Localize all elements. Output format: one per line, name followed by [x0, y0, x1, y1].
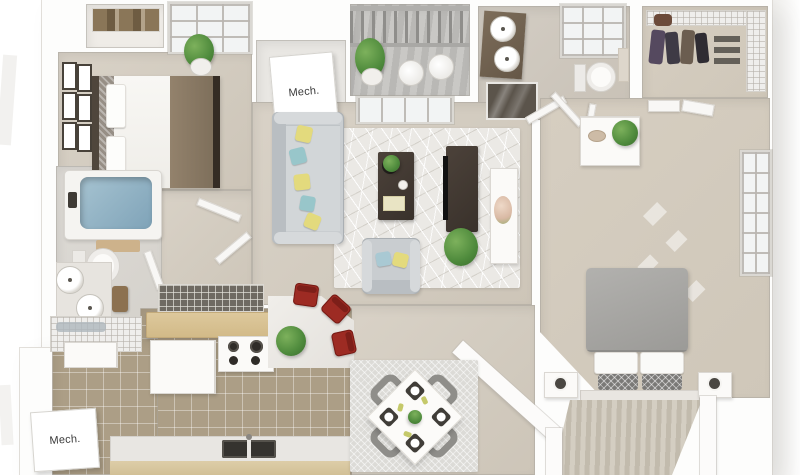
bathtub-water: [80, 177, 152, 229]
stair-side-wall: [700, 396, 716, 475]
kitchen-counter-front: [110, 461, 350, 475]
kitchen-faucet: [246, 434, 252, 440]
mech-bottom-label: Mech.: [49, 433, 81, 447]
sofa-pillow-teal: [299, 195, 316, 212]
pantry-wire-shelf: [158, 284, 264, 312]
master-closet-door: [648, 100, 680, 112]
bathroom2-towel: [618, 48, 629, 82]
coffee-table-plant: [383, 155, 400, 172]
bathtub-faucet: [68, 192, 77, 208]
napkin: [397, 403, 404, 412]
living-room-window: [356, 96, 454, 124]
bathroom2-window: [560, 4, 626, 58]
wall-stub: [546, 428, 562, 475]
tv-console: [446, 146, 478, 232]
master-bed-pillow: [594, 352, 638, 374]
master-bed-pillow: [640, 352, 684, 374]
armchair-armrest: [410, 240, 420, 292]
bathroom2-sink: [494, 46, 520, 72]
exterior-smudge-left2: [0, 385, 14, 446]
tv-screen: [443, 156, 448, 220]
master-dresser-plant: [612, 120, 638, 146]
master-bed-accent-pillow: [598, 374, 638, 390]
master-bed-accent-pillow: [642, 374, 682, 390]
sofa-pillow-yellow: [295, 125, 314, 144]
sofa-armrest: [274, 112, 342, 124]
kitchen-bar-counter: [146, 312, 272, 338]
bathroom1-sink: [56, 266, 84, 294]
bathroom1-stool: [112, 286, 128, 312]
nightstand-lamp: [555, 378, 566, 389]
stove-burner: [251, 356, 260, 365]
dining-centerpiece: [405, 407, 425, 427]
peninsula-plant: [276, 326, 306, 356]
coffee-table-vase: [398, 180, 408, 190]
stove-burner: [229, 356, 238, 365]
master-bedroom-window: [740, 150, 772, 276]
master-bed-comforter: [586, 268, 688, 352]
bed1-footboard: [213, 76, 220, 188]
gallery-frame: [62, 122, 77, 150]
gallery-frame: [62, 62, 77, 90]
gallery-frame: [77, 124, 92, 152]
armchair-armrest: [362, 240, 372, 292]
bathroom2-sink: [490, 16, 516, 42]
nightstand-lamp: [709, 378, 720, 389]
gallery-frame: [77, 94, 92, 122]
sofa-back: [272, 112, 286, 244]
master-console-flowers: [494, 196, 512, 224]
linen-items: [56, 322, 106, 332]
washer-unit: [64, 342, 118, 368]
master-bed-headboard: [580, 390, 700, 401]
master-dresser-decor: [588, 130, 606, 142]
bed1-pillow: [106, 84, 126, 128]
napkin: [403, 431, 412, 438]
kitchen-sink-divider: [247, 440, 251, 458]
bathroom2-toilet-tank: [574, 64, 586, 92]
balcony-chair: [428, 54, 454, 80]
red-bar-chair: [293, 282, 320, 307]
gallery-frame: [77, 64, 92, 92]
closet2-clothes: [665, 31, 681, 64]
armchair: [362, 238, 420, 294]
refrigerator: [150, 340, 216, 394]
red-bar-chair: [331, 329, 358, 357]
bedroom1-plant-pot: [190, 58, 212, 76]
closet1-shelf-baskets: [92, 8, 160, 32]
exterior-shadow-right: [770, 0, 800, 475]
exterior-smudge-left: [0, 55, 17, 146]
closet2-clothes: [680, 30, 695, 65]
balcony-plant-pot: [361, 68, 383, 86]
balcony-chair: [398, 60, 424, 86]
living-room-plant: [444, 228, 478, 266]
sofa-armrest: [274, 232, 342, 244]
range-stove: [218, 336, 274, 372]
closet2-wire-shelf-right: [746, 10, 766, 92]
mech-unit-bottom: Mech.: [30, 408, 100, 472]
stove-burner: [250, 340, 263, 353]
closet2-purse: [654, 14, 672, 26]
stove-burner: [228, 341, 239, 352]
coffee-table-book: [383, 196, 405, 211]
bed1-duvet: [170, 76, 214, 188]
closet2-shoes: [714, 34, 740, 64]
bathroom2-toilet-bowl: [586, 62, 616, 92]
floor-plan-render: Mech.: [0, 0, 800, 475]
gallery-frame: [62, 92, 77, 120]
sofa-pillow-yellow: [293, 173, 311, 191]
napkin: [421, 396, 429, 405]
armchair-pillow-blue: [375, 251, 392, 267]
mech-top-label: Mech.: [288, 85, 320, 100]
